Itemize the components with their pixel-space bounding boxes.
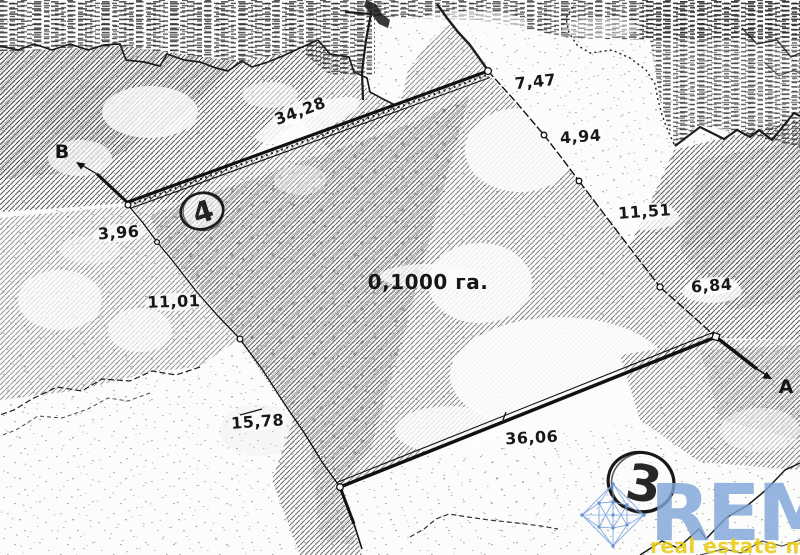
measurement-left-2: 11,01 [144, 291, 203, 312]
measurement-right-2: 4,94 [554, 125, 607, 148]
point-label-b: B [55, 141, 69, 163]
svg-text:15,78: 15,78 [230, 410, 284, 433]
survey-map-canvas: 34,28 7,47 4,94 11,51 6,84 3,96 11,01 1 [0, 0, 800, 555]
svg-text:6,84: 6,84 [690, 275, 733, 297]
measurement-left-1: 3,96 [92, 221, 145, 244]
svg-text:3,96: 3,96 [97, 222, 140, 244]
svg-text:11,01: 11,01 [147, 291, 201, 312]
measurement-right-4: 6,84 [685, 274, 738, 297]
point-label-a: A [779, 376, 794, 398]
svg-text:0,1000 га.: 0,1000 га. [368, 270, 489, 294]
scanned-survey-map: 34,28 7,47 4,94 11,51 6,84 3,96 11,01 1 [0, 0, 800, 555]
measurement-left-3: 15,78 [228, 410, 287, 433]
svg-text:11,51: 11,51 [617, 200, 671, 223]
svg-text:36,06: 36,06 [505, 427, 559, 449]
measurement-right-3: 11,51 [615, 200, 674, 223]
rem-tagline-text: real estate map [650, 534, 800, 555]
svg-text:4,94: 4,94 [559, 126, 602, 148]
